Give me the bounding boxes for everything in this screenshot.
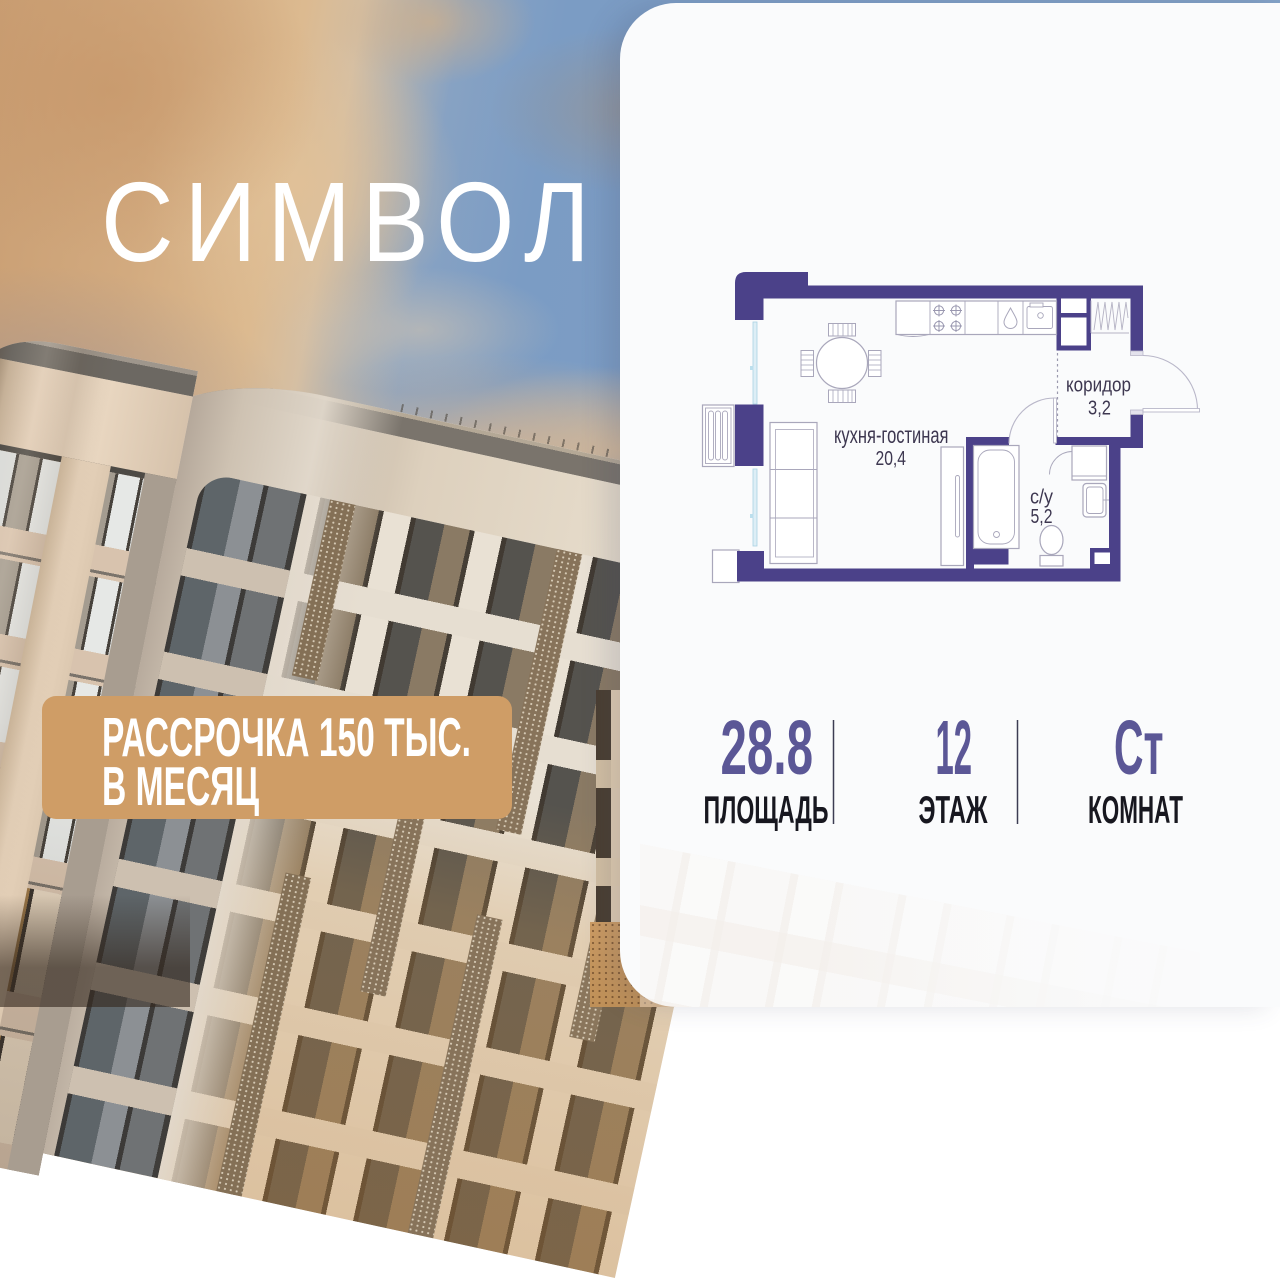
svg-text:3,2: 3,2 <box>1088 398 1111 420</box>
svg-text:В МЕСЯЦ: В МЕСЯЦ <box>102 755 259 817</box>
svg-text:20,4: 20,4 <box>876 448 907 470</box>
svg-text:5,2: 5,2 <box>1031 506 1053 528</box>
svg-text:кухня-гостиная: кухня-гостиная <box>834 422 949 448</box>
svg-text:СИМВОЛ: СИМВОЛ <box>101 159 601 286</box>
svg-text:12: 12 <box>936 705 973 791</box>
svg-text:ПЛОЩАДЬ: ПЛОЩАДЬ <box>704 789 829 832</box>
svg-text:коридор: коридор <box>1066 375 1131 397</box>
svg-text:ЭТАЖ: ЭТАЖ <box>919 789 988 832</box>
svg-text:КОМНАТ: КОМНАТ <box>1088 789 1183 832</box>
svg-text:Ст: Ст <box>1114 705 1164 791</box>
svg-text:28.8: 28.8 <box>721 705 814 791</box>
